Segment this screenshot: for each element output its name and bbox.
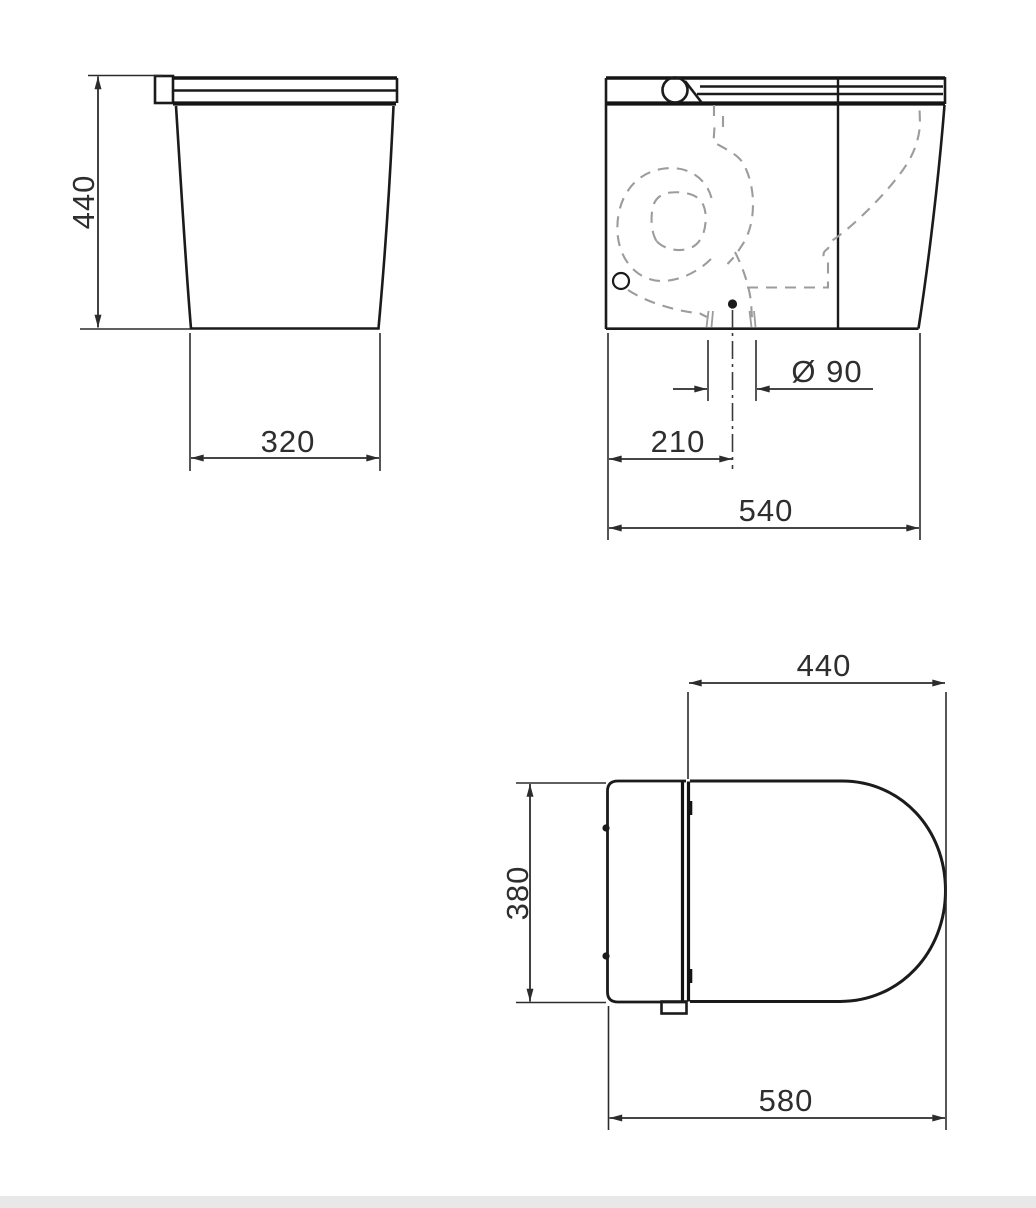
front-hinge-circle bbox=[663, 78, 688, 103]
front-drain-center-dot bbox=[728, 299, 737, 308]
top-rear-block-outline bbox=[608, 781, 687, 1002]
dim-front-drain-offset-label: 210 bbox=[651, 424, 706, 459]
dim-top-width-label: 380 bbox=[500, 866, 535, 921]
toilet-three-view-drawing: 440 320 bbox=[0, 0, 1036, 1208]
technical-drawing-page: 440 320 bbox=[0, 0, 1036, 1208]
side-body-outline bbox=[176, 106, 394, 329]
dim-front-drain-diameter-label: Ø 90 bbox=[791, 354, 862, 389]
page-bottom-strip bbox=[0, 1196, 1036, 1208]
dim-side-height-label: 440 bbox=[66, 175, 101, 230]
dim-top-depth-label: 440 bbox=[797, 648, 852, 683]
dim-top-length-label: 580 bbox=[759, 1083, 814, 1118]
top-left-pin-2 bbox=[602, 952, 609, 959]
side-lid-hinge-tab bbox=[155, 76, 173, 103]
dim-top-width: 380 bbox=[500, 783, 606, 1003]
front-view: Ø 90 210 540 bbox=[606, 77, 945, 540]
dim-side-height: 440 bbox=[66, 76, 190, 330]
front-body-right-edge bbox=[919, 105, 945, 329]
dim-front-drain-diameter: Ø 90 bbox=[673, 340, 873, 401]
dim-side-base-width: 320 bbox=[190, 333, 380, 471]
dim-front-width-label: 540 bbox=[739, 493, 794, 528]
front-fixing-hole bbox=[613, 273, 629, 289]
dim-front-drain-offset: 210 bbox=[608, 333, 732, 540]
front-trapway-hidden-lines bbox=[617, 105, 920, 327]
top-seat-outline bbox=[690, 781, 946, 1002]
side-view: 440 320 bbox=[66, 76, 397, 472]
dim-side-base-width-label: 320 bbox=[261, 424, 316, 459]
top-left-pin-1 bbox=[602, 824, 609, 831]
dim-top-length: 580 bbox=[609, 1006, 946, 1130]
dim-top-depth: 440 bbox=[688, 648, 946, 1130]
top-view: 440 380 580 bbox=[500, 648, 946, 1130]
